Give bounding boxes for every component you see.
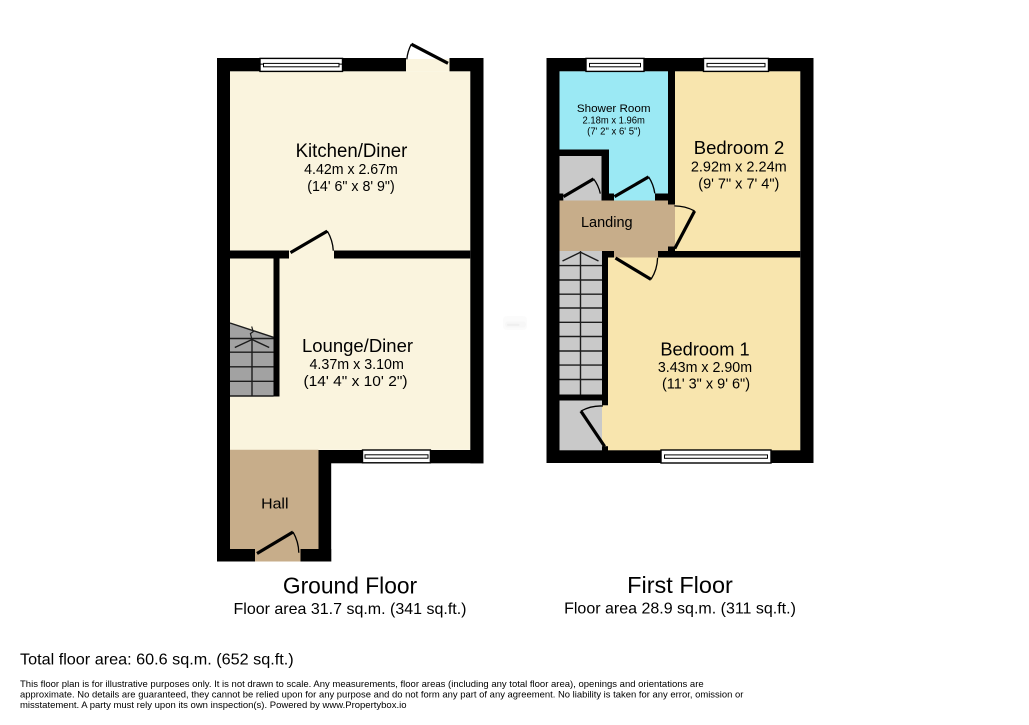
- svg-text:Kitchen/Diner: Kitchen/Diner: [296, 141, 408, 162]
- svg-text:Lounge/Diner: Lounge/Diner: [302, 335, 413, 356]
- svg-text:(7' 2" x 6' 5"): (7' 2" x 6' 5"): [587, 127, 641, 138]
- svg-text:First Floor: First Floor: [627, 572, 733, 598]
- svg-text:4.42m x 2.67m: 4.42m x 2.67m: [304, 162, 398, 178]
- svg-text:(9' 7" x 7' 4"): (9' 7" x 7' 4"): [698, 177, 779, 193]
- svg-text:Bedroom 1: Bedroom 1: [660, 338, 749, 359]
- svg-text:This floor plan is for illustr: This floor plan is for illustrative purp…: [20, 679, 704, 690]
- svg-text:4.37m x 3.10m: 4.37m x 3.10m: [310, 357, 404, 373]
- svg-text:misstatement. A party must rel: misstatement. A party must rely upon its…: [20, 700, 407, 711]
- svg-text:3.43m x 2.90m: 3.43m x 2.90m: [658, 360, 752, 376]
- svg-text:Hall: Hall: [261, 496, 288, 512]
- svg-text:(11' 3" x 9' 6"): (11' 3" x 9' 6"): [662, 377, 750, 393]
- svg-text:Total floor area: 60.6 sq.m. (: Total floor area: 60.6 sq.m. (652 sq.ft.…: [20, 651, 294, 668]
- svg-text:Ground Floor: Ground Floor: [283, 573, 418, 599]
- svg-text:approximate. No details are gu: approximate. No details are guaranteed, …: [20, 689, 743, 700]
- svg-text:Floor area 31.7 sq.m. (341 sq.: Floor area 31.7 sq.m. (341 sq.ft.): [234, 601, 467, 618]
- svg-text:(14' 6" x 8' 9"): (14' 6" x 8' 9"): [307, 179, 394, 195]
- svg-text:2.92m x 2.24m: 2.92m x 2.24m: [691, 160, 787, 176]
- svg-text:Bedroom 2: Bedroom 2: [694, 137, 785, 158]
- svg-text:2.18m x 1.96m: 2.18m x 1.96m: [583, 115, 645, 126]
- svg-text:(14' 4" x 10' 2"): (14' 4" x 10' 2"): [304, 374, 408, 390]
- svg-text:Floor area 28.9 sq.m. (311 sq.: Floor area 28.9 sq.m. (311 sq.ft.): [564, 601, 796, 618]
- svg-text:Shower Room: Shower Room: [577, 103, 651, 115]
- svg-text:Landing: Landing: [581, 215, 633, 231]
